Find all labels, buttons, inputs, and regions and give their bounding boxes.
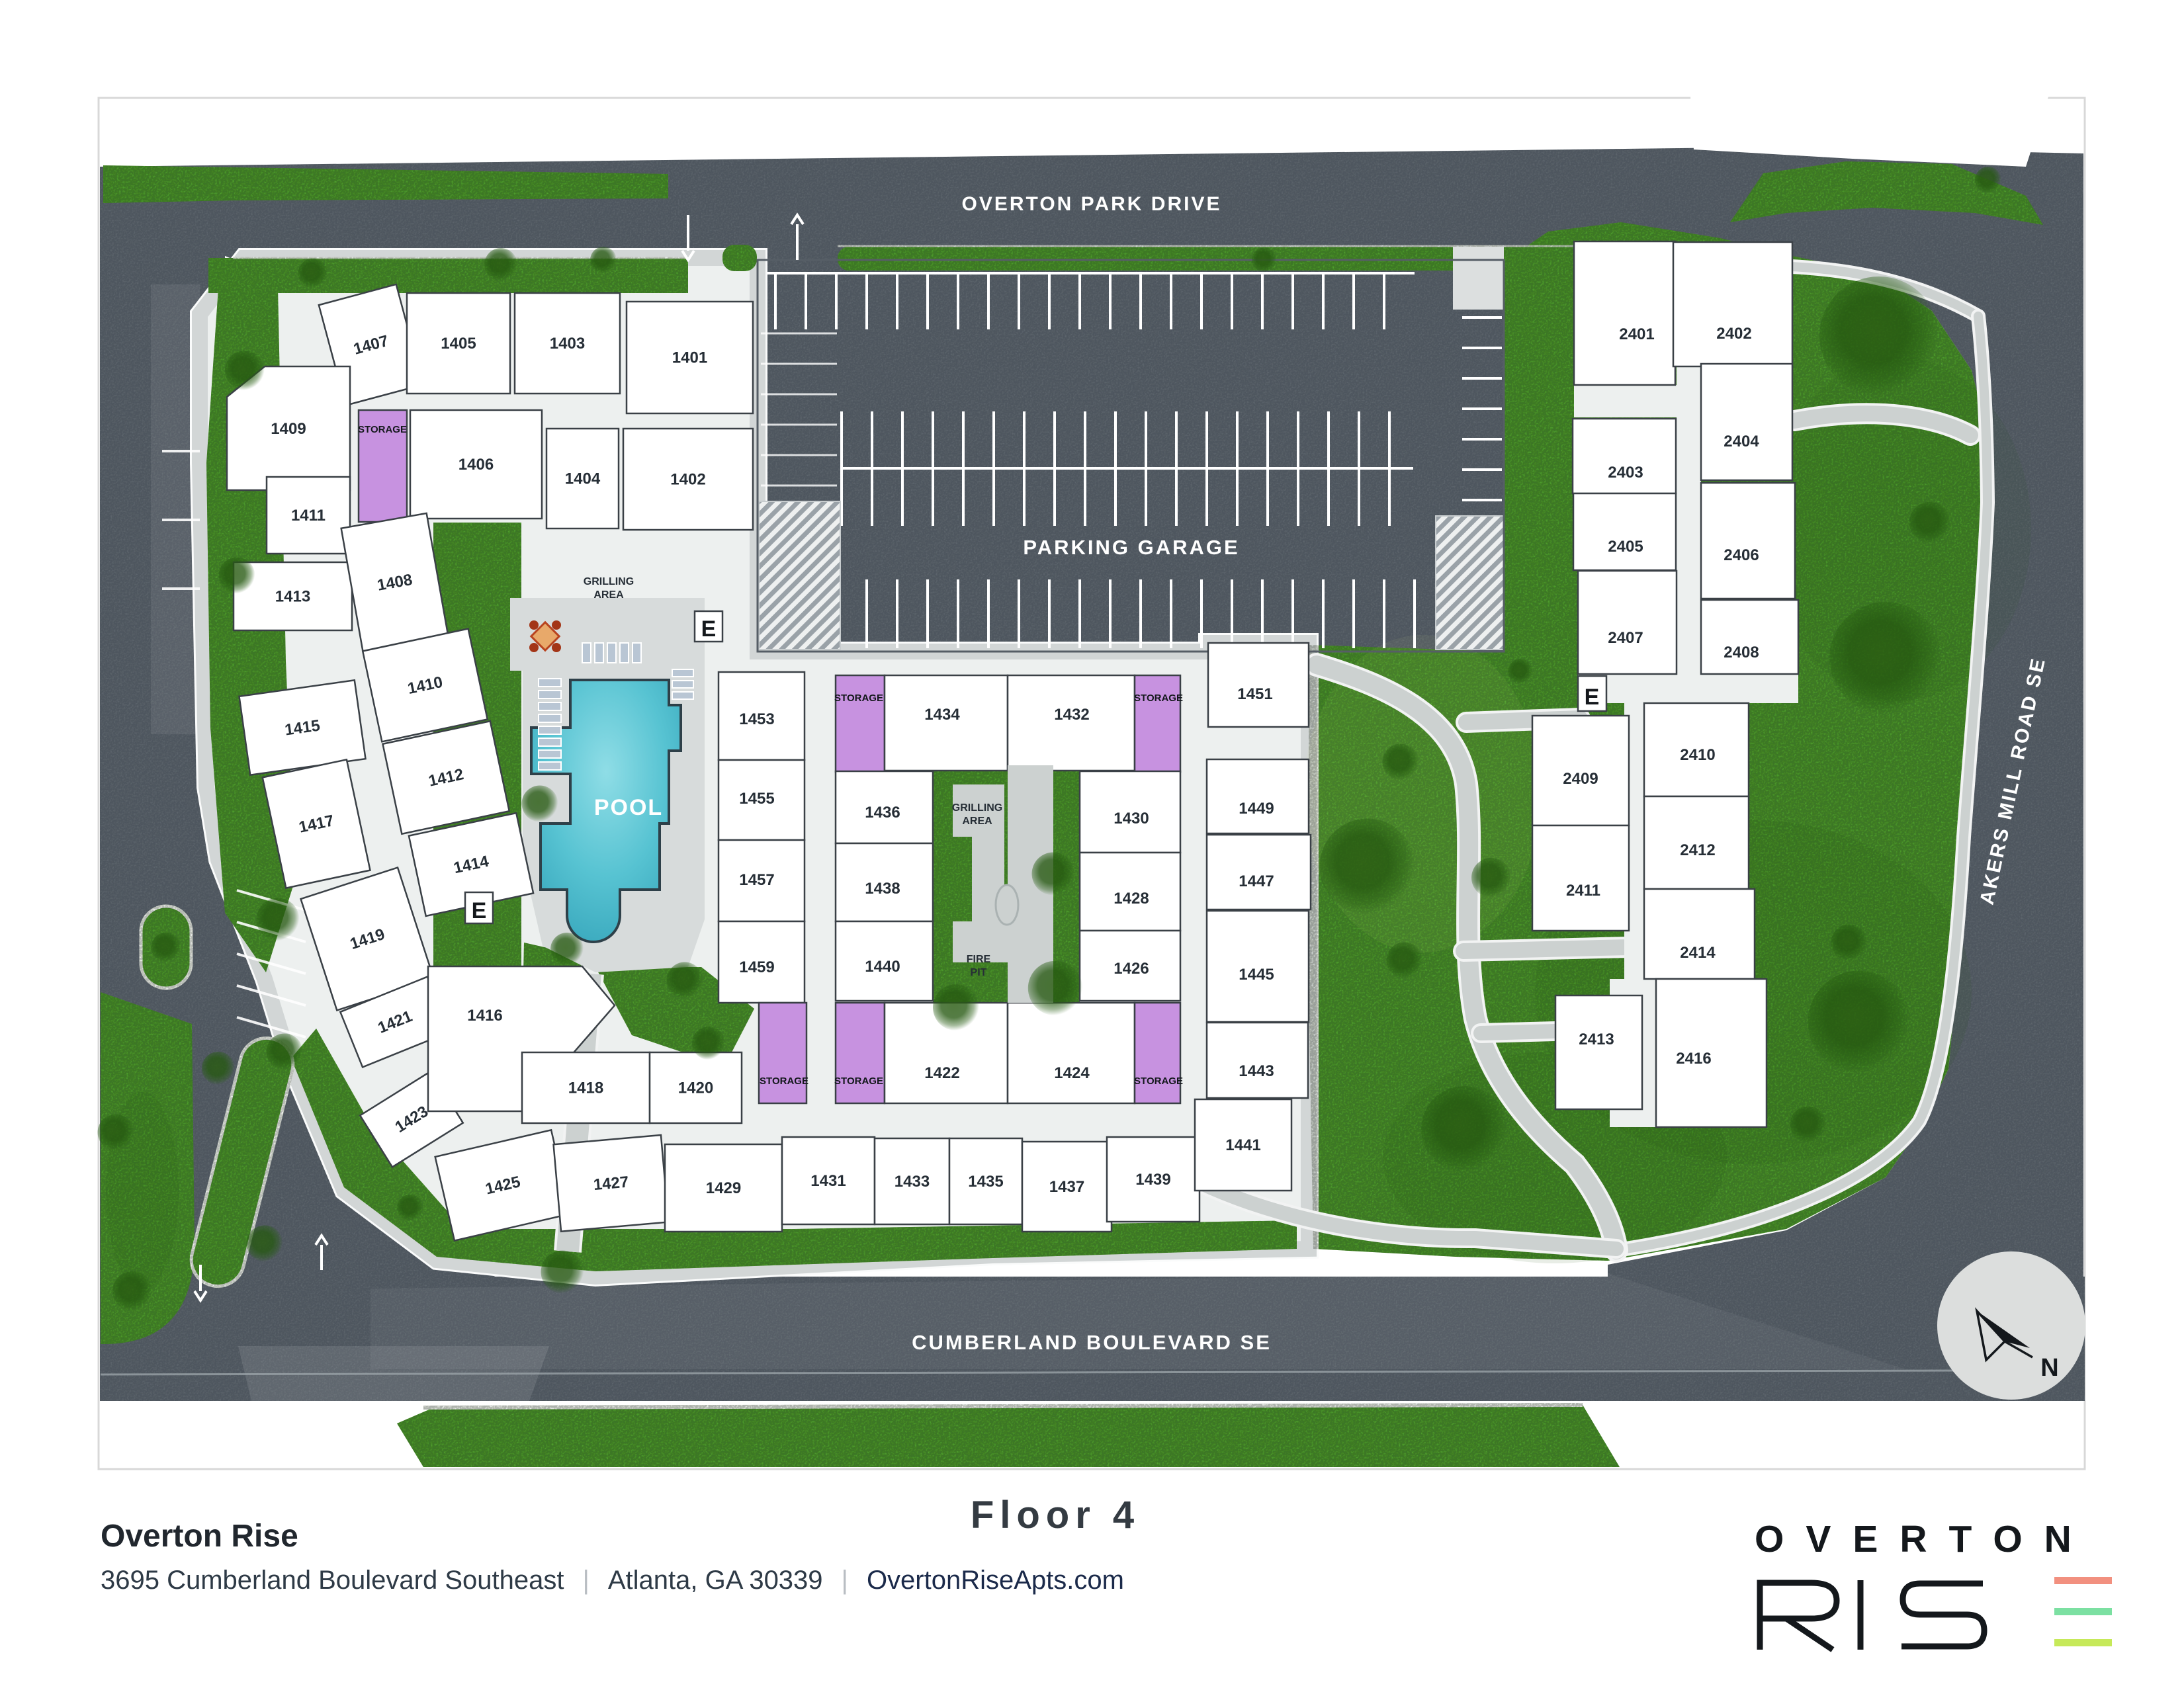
svg-text:1406: 1406 xyxy=(459,456,494,474)
svg-text:1430: 1430 xyxy=(1114,810,1149,827)
svg-text:POOL: POOL xyxy=(594,795,663,820)
svg-text:1433: 1433 xyxy=(895,1173,930,1191)
svg-text:CUMBERLAND BOULEVARD SE: CUMBERLAND BOULEVARD SE xyxy=(912,1331,1272,1354)
svg-text:2408: 2408 xyxy=(1724,644,1759,661)
svg-text:1449: 1449 xyxy=(1239,800,1274,818)
svg-text:2404: 2404 xyxy=(1724,433,1759,450)
svg-text:2403: 2403 xyxy=(1608,464,1643,482)
svg-text:1420: 1420 xyxy=(678,1079,713,1097)
svg-text:E: E xyxy=(701,616,717,642)
svg-text:STORAGE: STORAGE xyxy=(358,424,407,435)
svg-text:1413: 1413 xyxy=(275,588,310,606)
svg-text:AREA: AREA xyxy=(962,816,992,827)
svg-text:GRILLING: GRILLING xyxy=(952,802,1002,814)
svg-text:1431: 1431 xyxy=(810,1172,846,1190)
svg-text:1439: 1439 xyxy=(1135,1171,1170,1189)
svg-text:1459: 1459 xyxy=(739,958,774,976)
svg-text:1418: 1418 xyxy=(568,1079,603,1097)
svg-text:1416: 1416 xyxy=(467,1007,502,1025)
svg-text:1445: 1445 xyxy=(1239,966,1274,984)
svg-text:1422: 1422 xyxy=(924,1064,959,1082)
svg-text:STORAGE: STORAGE xyxy=(1134,1076,1183,1087)
svg-text:AREA: AREA xyxy=(593,589,624,601)
svg-text:1403: 1403 xyxy=(550,335,585,353)
svg-text:2405: 2405 xyxy=(1608,538,1643,556)
svg-text:2412: 2412 xyxy=(1680,841,1715,859)
svg-text:1411: 1411 xyxy=(291,507,326,525)
svg-text:1435: 1435 xyxy=(968,1173,1003,1191)
svg-text:E: E xyxy=(472,898,487,923)
svg-text:1409: 1409 xyxy=(271,420,306,438)
svg-text:2401: 2401 xyxy=(1619,325,1654,343)
svg-text:PARKING GARAGE: PARKING GARAGE xyxy=(1023,536,1239,559)
svg-text:E: E xyxy=(1585,685,1600,710)
svg-text:2416: 2416 xyxy=(1676,1050,1711,1068)
svg-text:GRILLING: GRILLING xyxy=(584,576,634,587)
svg-text:1447: 1447 xyxy=(1239,872,1274,890)
svg-text:1429: 1429 xyxy=(706,1179,741,1197)
svg-text:1405: 1405 xyxy=(441,335,476,353)
svg-text:Overton Rise: Overton Rise xyxy=(101,1519,298,1554)
svg-text:PIT: PIT xyxy=(971,967,987,978)
svg-text:2413: 2413 xyxy=(1579,1031,1614,1048)
svg-text:Floor 4: Floor 4 xyxy=(971,1494,1140,1537)
svg-text:2406: 2406 xyxy=(1724,546,1759,564)
svg-text:OVERTON: OVERTON xyxy=(1755,1518,2093,1560)
svg-text:2414: 2414 xyxy=(1680,944,1716,962)
svg-text:STORAGE: STORAGE xyxy=(834,1076,883,1087)
svg-text:STORAGE: STORAGE xyxy=(1134,693,1183,704)
svg-text:1436: 1436 xyxy=(865,804,900,822)
svg-text:1424: 1424 xyxy=(1054,1064,1090,1082)
svg-text:FIRE: FIRE xyxy=(967,954,991,965)
svg-text:STORAGE: STORAGE xyxy=(834,693,883,704)
svg-text:2402: 2402 xyxy=(1716,325,1751,343)
svg-text:1451: 1451 xyxy=(1237,685,1272,703)
svg-text:1427: 1427 xyxy=(593,1173,630,1195)
svg-text:1428: 1428 xyxy=(1114,890,1149,908)
svg-text:2410: 2410 xyxy=(1680,746,1715,764)
svg-text:1434: 1434 xyxy=(924,706,960,724)
svg-text:1432: 1432 xyxy=(1054,706,1089,724)
svg-text:N: N xyxy=(2040,1354,2058,1382)
svg-text:2409: 2409 xyxy=(1563,770,1598,788)
svg-text:STORAGE: STORAGE xyxy=(760,1076,808,1087)
svg-text:OVERTON PARK DRIVE: OVERTON PARK DRIVE xyxy=(962,193,1222,215)
svg-text:1441: 1441 xyxy=(1225,1136,1260,1154)
svg-text:1438: 1438 xyxy=(865,880,900,898)
svg-text:1455: 1455 xyxy=(739,790,774,808)
svg-text:2407: 2407 xyxy=(1608,629,1643,647)
svg-text:1443: 1443 xyxy=(1239,1062,1274,1080)
svg-text:1457: 1457 xyxy=(739,871,774,889)
svg-text:3695 Cumberland Boulevard Sout: 3695 Cumberland Boulevard Southeast|Atla… xyxy=(101,1566,1124,1595)
svg-text:1401: 1401 xyxy=(672,349,707,367)
svg-text:1440: 1440 xyxy=(865,958,900,976)
svg-text:1426: 1426 xyxy=(1114,960,1149,978)
svg-text:1453: 1453 xyxy=(739,710,774,728)
svg-text:1437: 1437 xyxy=(1049,1178,1084,1196)
svg-text:2411: 2411 xyxy=(1566,882,1600,900)
svg-text:1404: 1404 xyxy=(565,470,601,488)
svg-text:1402: 1402 xyxy=(670,471,705,489)
